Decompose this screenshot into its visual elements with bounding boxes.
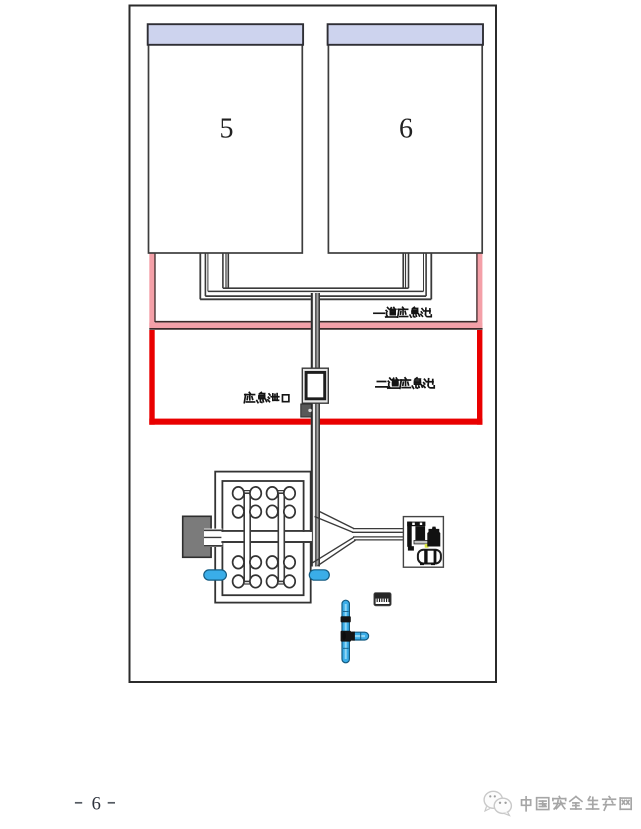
svg-text:5: 5 [220,114,234,145]
svg-text:6: 6 [399,114,413,145]
svg-text:6: 6 [92,795,101,815]
